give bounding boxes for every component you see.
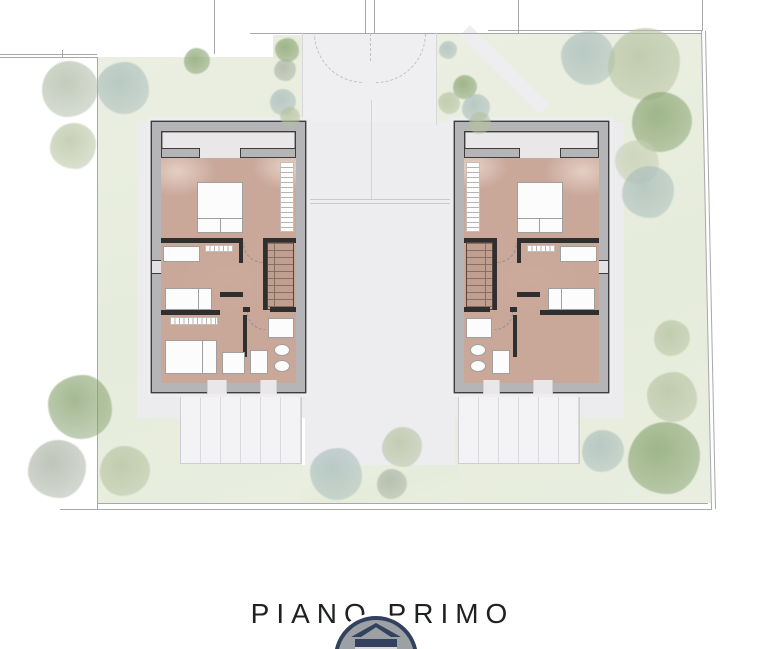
interior-wall (513, 315, 517, 357)
stair-wall (493, 242, 497, 310)
balcony-wall (560, 148, 599, 158)
boundary-line (0, 54, 97, 55)
interior-wall (517, 243, 521, 263)
bed-bedroom2 (165, 288, 212, 310)
balcony-wall (464, 148, 520, 158)
sidewalk-right (608, 122, 624, 418)
balcony-wall (161, 148, 200, 158)
staircase (267, 242, 294, 310)
interior-wall (517, 238, 599, 243)
sink (250, 350, 268, 374)
gate-dashed-line (370, 33, 371, 61)
boundary-line (0, 57, 97, 58)
wardrobe-master (280, 162, 294, 232)
bed-master (517, 182, 563, 233)
wardrobe-bedroom3 (170, 317, 218, 325)
bed-bedroom2 (548, 288, 595, 310)
sidewalk-left (137, 122, 152, 418)
garden-strip-left (273, 35, 302, 59)
window (599, 260, 608, 274)
door-opening (260, 380, 277, 394)
shower (466, 318, 492, 338)
boundary-line (97, 57, 98, 510)
tree (50, 123, 96, 169)
door-opening (483, 380, 500, 394)
door-opening (533, 380, 553, 394)
boundary-line (60, 509, 712, 510)
house-body-icon (355, 639, 397, 649)
tree (28, 440, 86, 498)
nightstand (222, 352, 245, 374)
deck-left (180, 392, 302, 464)
wardrobe-master (466, 162, 480, 232)
interior-wall (220, 292, 243, 297)
house-roof-icon (351, 623, 401, 637)
fence-post-line (702, 0, 703, 31)
driveway-edge (436, 33, 437, 125)
interior-wall (161, 238, 243, 243)
tree (42, 61, 98, 117)
bidet (470, 360, 486, 372)
interior-wall (540, 310, 599, 315)
site-plan: PIANO PRIMO (0, 0, 765, 649)
toilet (274, 344, 290, 356)
radiator (527, 245, 555, 252)
courtyard-divider (305, 199, 455, 200)
interior-wall (161, 310, 220, 315)
interior-wall (239, 243, 243, 263)
boundary-line (488, 30, 702, 31)
interior-wall (243, 315, 247, 357)
courtyard-center-line (371, 100, 372, 199)
fence-post-line (518, 0, 519, 33)
unit-left (152, 122, 305, 392)
deck-right (458, 392, 580, 464)
boundary-line (97, 503, 708, 504)
courtyard-divider (305, 203, 455, 204)
sink (492, 350, 510, 374)
bed-master (197, 182, 243, 233)
balcony-wall (240, 148, 296, 158)
garden-bottom-center (302, 465, 458, 503)
interior-wall (464, 307, 490, 312)
courtyard (305, 122, 455, 465)
gate-post-line (374, 0, 375, 33)
gate-post-line (365, 0, 366, 33)
staircase (466, 242, 493, 310)
window (152, 260, 161, 274)
toilet (470, 344, 486, 356)
radiator (205, 245, 233, 252)
bed-bedroom3 (165, 340, 217, 374)
desk-bedroom2 (560, 246, 597, 262)
bidet (274, 360, 290, 372)
interior-wall (270, 307, 296, 312)
boundary-line (62, 50, 63, 58)
interior-wall (517, 292, 540, 297)
shower (268, 318, 294, 338)
driveway-edge (302, 33, 303, 125)
fence-post-line (214, 0, 215, 54)
door-opening (207, 380, 227, 394)
unit-right (455, 122, 608, 392)
desk-bedroom2 (163, 246, 200, 262)
